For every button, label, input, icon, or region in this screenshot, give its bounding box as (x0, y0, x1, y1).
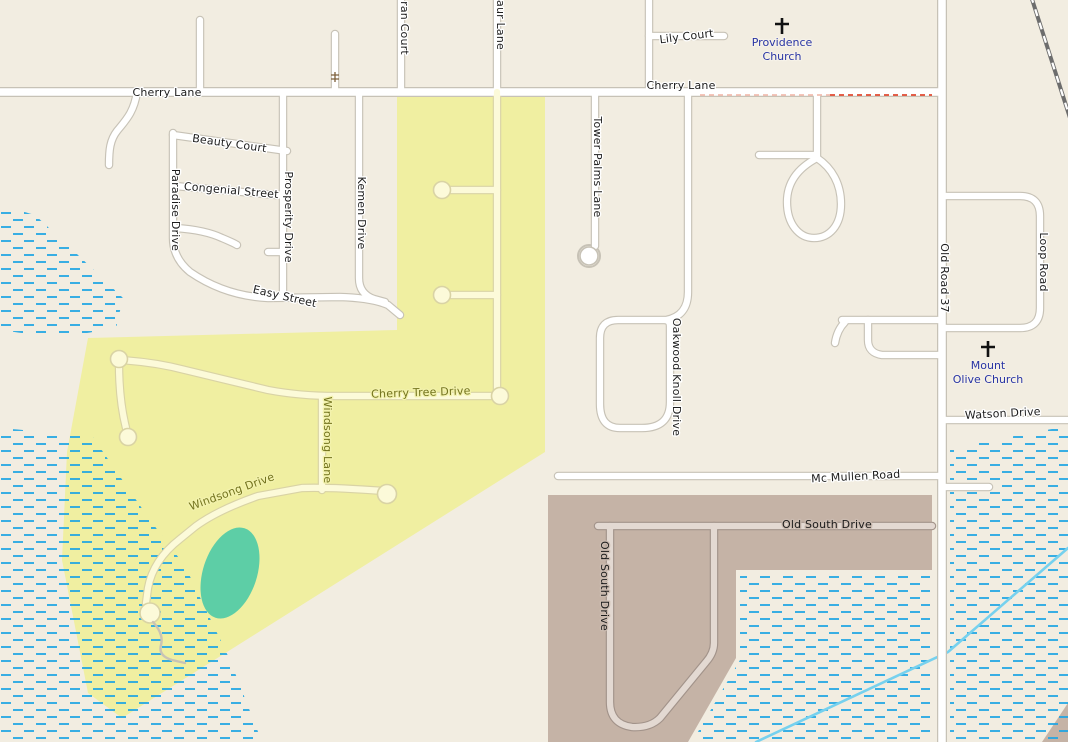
label-mount-olive-church-line1: Mount (971, 359, 1006, 372)
label-old-south-drive-v: Old South Drive (598, 541, 611, 631)
culdesac-windsong-south (140, 603, 160, 623)
culdesac-cherry-tree-west (111, 351, 128, 368)
culdesac-cherry-tree-east (492, 388, 509, 405)
label-oakwood-knoll-drive: Oakwood Knoll Drive (670, 318, 683, 436)
label-paradise-drive: Paradise Drive (169, 169, 182, 251)
label-providence-church-line1: Providence (752, 36, 813, 49)
label-loop-road: Loop Road (1037, 232, 1050, 291)
label-providence-church-line2: Church (763, 50, 802, 63)
label-ran-court: ran Court (398, 1, 411, 55)
map-canvas[interactable]: Cherry Lane Cherry Lane Lily Court ran C… (0, 0, 1068, 742)
culdesac-1 (434, 182, 451, 199)
label-windsong-lane: Windsong Lane (321, 397, 334, 484)
label-tower-palms-lane: Tower Palms Lane (591, 115, 604, 217)
label-aur-lane: aur Lane (494, 0, 507, 50)
culdesac-windsong-east (378, 485, 397, 504)
map-viewport[interactable]: Cherry Lane Cherry Lane Lily Court ran C… (0, 0, 1068, 742)
label-cherry-lane-east: Cherry Lane (646, 79, 715, 92)
label-prosperity-drive: Prosperity Drive (282, 171, 295, 262)
label-mount-olive-church-line2: Olive Church (953, 373, 1023, 386)
label-kemen-drive: Kemen Drive (355, 177, 368, 250)
culdesac-tower-palms (580, 247, 598, 265)
label-old-road-37: Old Road 37 (938, 243, 951, 313)
culdesac-branch-south (120, 429, 137, 446)
culdesac-2 (434, 287, 451, 304)
label-old-south-drive-h: Old South Drive (782, 518, 872, 531)
label-cherry-lane-west: Cherry Lane (132, 86, 201, 99)
